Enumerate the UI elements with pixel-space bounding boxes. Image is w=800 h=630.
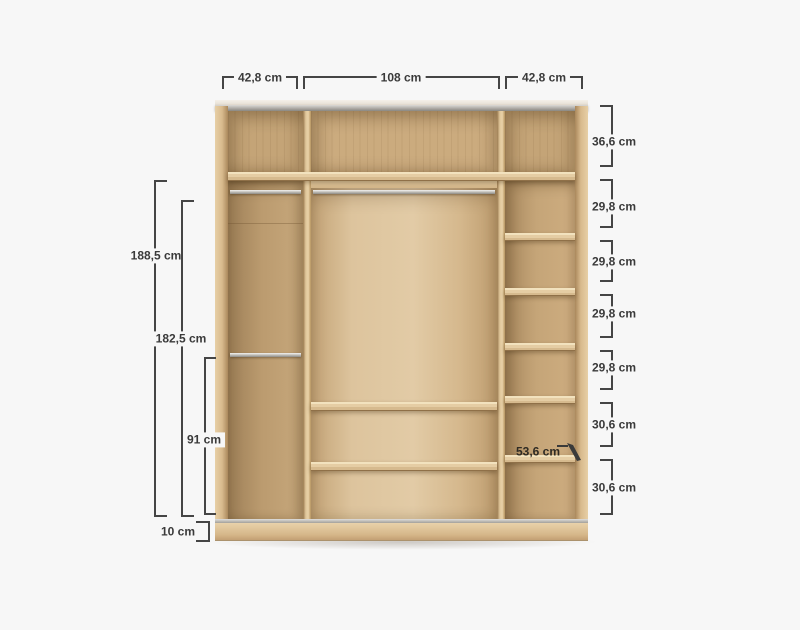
dim-tick [296, 76, 298, 89]
left-section-back-panel [228, 180, 303, 519]
wardrobe-illustration [215, 100, 588, 540]
hanging-rail-left-lower [230, 353, 301, 357]
top-shelf [228, 172, 575, 181]
top-compartment-left [228, 111, 303, 172]
dim-label: 29,8 cm [588, 306, 640, 321]
dim-tick [600, 294, 613, 296]
dim-tick [600, 179, 613, 181]
dim-tick [600, 336, 613, 338]
dim-line [208, 521, 210, 542]
dim-tick [222, 76, 224, 89]
dim-label: 42,8 cm [234, 70, 286, 85]
dim-label: 91 cm [183, 432, 225, 447]
plinth [215, 523, 588, 541]
dim-tick [181, 515, 194, 517]
left-side-panel [215, 106, 228, 519]
dim-label: 108 cm [377, 70, 426, 85]
dim-label: 29,8 cm [588, 360, 640, 375]
right-shelf-3 [505, 343, 575, 351]
middle-shelf-lower [311, 462, 497, 471]
dim-tick [181, 200, 194, 202]
dim-tick [505, 76, 507, 89]
depth-arrow-icon [556, 441, 584, 465]
back-panel-seam [228, 223, 303, 224]
dim-tick [600, 165, 613, 167]
dimension-diagram-canvas: 42,8 cm 108 cm 42,8 cm 188,5 cm 182,5 cm… [0, 0, 800, 630]
right-shelf-2 [505, 288, 575, 296]
dim-label: 30,6 cm [588, 480, 640, 495]
dim-tick [600, 105, 613, 107]
dim-label: 42,8 cm [518, 70, 570, 85]
right-shelf-4 [505, 396, 575, 404]
dim-tick [154, 180, 167, 182]
dim-tick [204, 513, 216, 515]
dim-tick [600, 280, 613, 282]
dim-tick [600, 445, 613, 447]
top-compartment-right [505, 111, 575, 172]
dim-tick [154, 515, 167, 517]
dim-tick [600, 459, 613, 461]
dim-tick [196, 521, 209, 523]
dim-line [181, 200, 183, 517]
dim-tick [600, 240, 613, 242]
dim-label: 10 cm [161, 525, 195, 538]
dim-line [154, 180, 156, 517]
dim-tick [600, 402, 613, 404]
right-shelf-1 [505, 233, 575, 241]
dim-label: 188,5 cm [127, 248, 186, 263]
dim-tick [196, 540, 209, 542]
dim-label: 36,6 cm [588, 134, 640, 149]
dim-tick [600, 513, 613, 515]
dim-label: 53,6 cm [516, 445, 560, 458]
middle-shelf-upper [311, 402, 497, 411]
dim-label: 29,8 cm [588, 254, 640, 269]
dim-label: 30,6 cm [588, 417, 640, 432]
dim-label: 29,8 cm [588, 199, 640, 214]
hanging-rail-middle [313, 190, 495, 194]
dim-tick [600, 350, 613, 352]
dim-tick [581, 76, 583, 89]
dim-tick [498, 76, 500, 89]
dim-tick [204, 357, 216, 359]
top-compartment-middle [311, 111, 497, 172]
dim-tick [600, 226, 613, 228]
dim-tick [600, 388, 613, 390]
dim-label: 182,5 cm [152, 331, 211, 346]
dim-tick [303, 76, 305, 89]
hanging-rail-left-upper [230, 190, 301, 194]
